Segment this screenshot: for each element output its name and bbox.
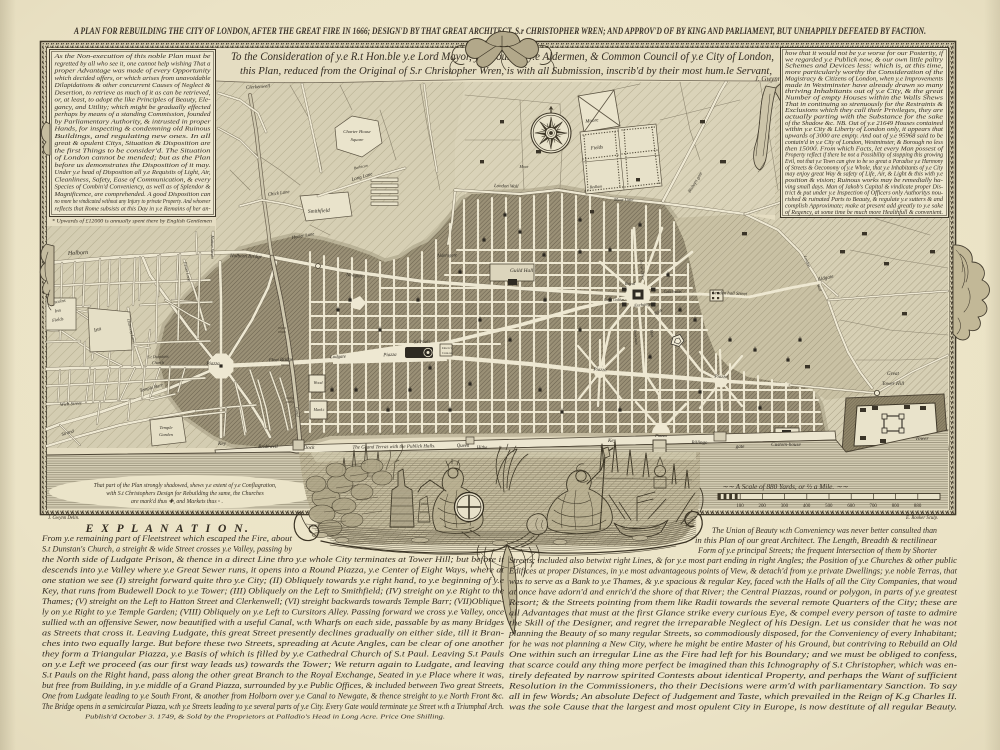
svg-text:Thames; (V) streight on the Le: Thames; (V) streight on the Left to Hatt… (42, 597, 504, 606)
svg-text:Piazza: Piazza (205, 362, 220, 367)
svg-text:London Wall: London Wall (493, 184, 519, 190)
svg-text:as Streets that cross it. Leav: as Streets that cross it. Leaving Ludgat… (42, 629, 504, 638)
svg-text:From y.e remaining part of Fle: From y.e remaining part of Fleetstreet w… (41, 534, 293, 543)
svg-text:Tower: Tower (915, 436, 929, 442)
svg-text:Bridewell: Bridewell (258, 445, 278, 450)
svg-text:Bedlam: Bedlam (589, 184, 602, 190)
svg-text:position & vision; Ruinous wor: position & vision; Ruinous works may be … (784, 178, 943, 184)
svg-text:gate: gate (736, 445, 745, 450)
svg-text:To the Consideration of y.e R.: To the Consideration of y.e R.t Hon.ble … (231, 51, 774, 63)
svg-text:Evil, not that y.e Town can gi: Evil, not that y.e Town can give to be s… (784, 159, 943, 165)
svg-text:The Bridge opens in a semicirc: The Bridge opens in a semicircular Piazz… (42, 702, 504, 711)
svg-text:contain'd in y.e City of Londo: contain'd in y.e City of London, Westmin… (785, 139, 944, 146)
svg-text:may enjoy great Way & safety o: may enjoy great Way & safety of Life, Ai… (785, 171, 943, 178)
svg-text:planning the Beauty of so many: planning the Beauty of so many regular S… (508, 629, 957, 638)
svg-text:700: 700 (870, 504, 878, 509)
svg-text:of the Shadow &c. NB. Out of y: of the Shadow &c. NB. Out of y.e 21649 H… (785, 120, 943, 127)
svg-text:That part of the Plan strongly: That part of the Plan strongly shadowed,… (94, 482, 277, 489)
svg-text:thriving Inhabitants out of y.: thriving Inhabitants out of y.e City, & … (785, 88, 944, 95)
svg-text:Under y.e head of Disposition: Under y.e head of Disposition all y.e Re… (55, 169, 212, 176)
svg-text:Dock: Dock (303, 445, 316, 451)
svg-text:in this Plan of our great Arch: in this Plan of our great Architect. The… (695, 536, 938, 545)
svg-text:Resolution in the Commissioner: Resolution in the Commissioners, tho the… (508, 681, 958, 690)
svg-text:Queen: Queen (457, 444, 470, 449)
svg-text:Aldersgate: Aldersgate (436, 252, 457, 258)
svg-text:no more be vindicated without: no more be vindicated without any Injury… (55, 199, 212, 205)
svg-text:One within such an irregular L: One within such an irregular Line as the… (509, 650, 957, 659)
svg-text:one station we see (I) streigh: one station we see (I) streight forward … (42, 576, 504, 585)
svg-text:Charter House: Charter House (343, 129, 370, 134)
svg-text:the Skill of the Designer, and: the Skill of the Designer, and regret th… (509, 619, 958, 628)
svg-text:regretted by all who see it, o: regretted by all who see it, one cannot … (55, 61, 211, 67)
svg-text:As the Non-execution of this n: As the Non-execution of this noble Plan … (53, 53, 211, 60)
svg-text:before us demonstrates the Dis: before us demonstrates the Disposition o… (55, 162, 211, 169)
svg-text:they form a Triangular Piazza,: they form a Triangular Piazza, y.e Basis… (42, 650, 504, 659)
svg-text:Piazza: Piazza (382, 353, 397, 359)
svg-text:Smithfield: Smithfield (308, 207, 331, 215)
svg-text:within y.e City & Liberty of L: within y.e City & Liberty of London only… (785, 126, 943, 133)
svg-text:Resort; & the Streets pointing: Resort; & the Streets pointing from them… (508, 598, 958, 607)
svg-text:Dilapidations & other concurre: Dilapidations & other concurrent Causes … (53, 82, 211, 89)
svg-text:Species of Combin'd Convenienc: Species of Combin'd Conveniency, as well… (55, 184, 211, 191)
svg-text:actually parting with the Subs: actually parting with the Substance for … (785, 114, 944, 121)
svg-text:S.t Pauls on the Right hand, p: S.t Pauls on the Right hand, pass along … (42, 671, 504, 680)
svg-text:Ludgate: Ludgate (329, 355, 347, 361)
svg-text:One from Ludgate leading to y.: One from Ludgate leading to y.e South Fr… (42, 692, 504, 701)
svg-text:are mark'd thus ✚, and Markets: are mark'd thus ✚, and Markets thus ▫ . (131, 498, 223, 505)
svg-text:800: 800 (892, 504, 900, 509)
svg-text:Guild Goldsm.: Guild Goldsm. (604, 298, 625, 302)
svg-text:by Parliamentary Authority, &: by Parliamentary Authority, & intrusted … (55, 119, 212, 125)
svg-text:Property reflect if there be n: Property reflect if there be not a Possi… (784, 152, 943, 159)
svg-text:trict & put under y.e Inspecti: trict & put under y.e Inspection of Offi… (785, 190, 943, 197)
svg-text:Temple: Temple (159, 425, 172, 430)
svg-text:E. Rooker Sculp.: E. Rooker Sculp. (905, 516, 938, 521)
svg-text:Royal: Royal (624, 281, 636, 286)
svg-text:Doct.rs: Doct.rs (441, 346, 453, 350)
svg-text:that scarce could any thing mo: that scarce could any thing more perfect… (509, 661, 957, 670)
svg-text:of Regency, at some time be mu: of Regency, at some time be much more He… (785, 209, 943, 216)
svg-text:was to serve as a Bank to y.e: was to serve as a Bank to y.e Thames, & … (509, 577, 958, 586)
svg-text:S.t Dunstans: S.t Dunstans (147, 354, 169, 360)
svg-text:Number of empty Houses within: Number of empty Houses within the Walls … (784, 94, 944, 101)
svg-text:Piazza: Piazza (654, 433, 668, 438)
svg-text:the North side of Ludgate Pris: the North side of Ludgate Prison, & then… (42, 555, 505, 564)
svg-text:Magnificence, are comprehended: Magnificence, are comprehended. A good D… (53, 191, 210, 198)
svg-text:Tower Hill: Tower Hill (882, 381, 905, 387)
svg-text:of Streets & Oeconomy of y.e W: of Streets & Oeconomy of y.e Whole, that… (785, 164, 943, 171)
svg-text:Key, that runs from Budewell D: Key, that runs from Budewell Dock to y.e… (41, 587, 505, 596)
svg-text:The Union of Beauty w.th Conve: The Union of Beauty w.th Conveniency was… (712, 526, 937, 535)
svg-text:great & opulent Citys, Situati: great & opulent Citys, Situation & Dispo… (55, 141, 211, 147)
svg-text:complish Approximate; make at: complish Approximate; make at present ad… (785, 203, 943, 209)
svg-text:Wood: Wood (314, 380, 324, 385)
svg-text:sullied w.th an offensive Sewe: sullied w.th an offensive Sewer, now bea… (42, 618, 504, 627)
svg-text:or, at least, to adopt the lik: or, at least, to adopt the like Principl… (55, 97, 211, 104)
svg-text:but free from Building, in y.e: but free from Building, in y.e middle of… (42, 681, 504, 690)
svg-text:Desertion, to retrieve as much: Desertion, to retrieve as much of it as … (53, 89, 211, 96)
svg-text:200: 200 (759, 504, 767, 509)
svg-text:S.t Dunstan's Church, a streig: S.t Dunstan's Church, a streight & wide … (42, 545, 292, 554)
svg-text:That in continuing so strenuou: That in continuing so strenuously for th… (785, 101, 944, 108)
svg-text:upwards of 3000 are empty. And: upwards of 3000 are empty. And out of y.… (785, 133, 943, 140)
svg-text:tirely defeated by narrow spir: tirely defeated by narrow spirited Conte… (509, 671, 958, 680)
svg-text:Schemes and Devices less: whic: Schemes and Devices less: which is, at t… (785, 64, 944, 70)
svg-text:at once have adorn'd and enric: at once have adorn'd and enrich'd the sh… (509, 587, 958, 596)
svg-text:rished & ruinated Parts to Bea: rished & ruinated Parts to Beauty, & reg… (785, 197, 943, 203)
svg-text:Piazza: Piazza (713, 375, 728, 381)
svg-text:Magistracy & Citizens of Londo: Magistracy & Citizens of London, when y.… (784, 75, 944, 82)
svg-text:J. Gwynn.: J. Gwynn. (755, 75, 783, 83)
svg-text:gancy, and Utility; which migh: gancy, and Utility; which might be gradu… (55, 104, 212, 111)
svg-text:perhaps by means of a standing: perhaps by means of a standing Commissio… (53, 111, 211, 118)
svg-text:Hatton Street: Hatton Street (210, 234, 215, 259)
svg-text:Com.ns: Com.ns (442, 351, 453, 355)
svg-text:Edifices at proper Distances,: Edifices at proper Distances, in y.e mos… (508, 566, 958, 575)
svg-text:was the sole Cause that the la: was the sole Cause that the largest and … (509, 702, 957, 711)
svg-text:then 15000. From which Facts,: then 15000. From which Facts, let every … (785, 145, 945, 152)
svg-text:Custom-house: Custom-house (771, 442, 801, 448)
svg-text:reflects that Rome subsists at: reflects that Rome subsists at this Day … (55, 205, 211, 212)
svg-text:Publish'd October 3. 1749, & S: Publish'd October 3. 1749, & Sold by the… (84, 714, 445, 721)
svg-text:Buildings, and regulating new: Buildings, and regulating new ones. In a… (55, 134, 212, 140)
svg-text:which decided offers, or which: which decided offers, or which arises fr… (55, 75, 211, 82)
svg-text:Guild Hall: Guild Hall (510, 268, 534, 274)
svg-text:400: 400 (803, 504, 811, 509)
svg-text:the first Things to be conside: the first Things to be consider'd. The S… (55, 147, 211, 154)
svg-text:with S.t Christophers Design f: with S.t Christophers Design for Rebuild… (106, 490, 264, 497)
svg-text:Piazza: Piazza (592, 368, 607, 374)
svg-text:Form of y.e principal Streets;: Form of y.e principal Streets; the frequ… (697, 546, 938, 555)
svg-text:Cleanliness, Safety, Ease of C: Cleanliness, Safety, Ease of Communicati… (55, 176, 211, 183)
svg-text:Holborn: Holborn (67, 250, 89, 257)
svg-text:Exclusions which they call the: Exclusions which they call their Privile… (784, 108, 944, 114)
svg-text:we regarded y.e Publick now, &: we regarded y.e Publick now, & our own l… (785, 57, 943, 63)
svg-text:Garden: Garden (159, 432, 174, 437)
svg-text:Mark.t: Mark.t (313, 407, 326, 412)
svg-text:600: 600 (847, 504, 855, 509)
svg-text:Church: Church (152, 360, 165, 365)
svg-text:all in few Words; An absolute: all in few Words; An absolute Defect of … (509, 692, 957, 701)
svg-text:proper Advantage was made of e: proper Advantage was made of every Oppor… (53, 68, 211, 75)
svg-text:∼∼ A Scale of 880 Yards, or ½: ∼∼ A Scale of 880 Yards, or ½ a Mile. ∼∼ (722, 483, 848, 491)
svg-text:Streets; included also betwixt: Streets; included also betwixt right Lin… (509, 556, 957, 565)
svg-text:descends into y.e Valley where: descends into y.e Valley where y.e Great… (42, 566, 505, 575)
svg-text:* Upwards of £12000 is annuall: * Upwards of £12000 is annually spent th… (52, 218, 212, 225)
svg-text:Square: Square (351, 137, 364, 142)
svg-text:Moor: Moor (519, 164, 529, 169)
svg-text:Billings-: Billings- (691, 441, 709, 446)
svg-text:J. Gwynn Delin.: J. Gwynn Delin. (48, 516, 79, 521)
svg-text:Hands, for inspecting & condem: Hands, for inspecting & condemning old R… (53, 126, 211, 133)
svg-text:for he was not planning a New: for he was not planning a New City, wher… (509, 640, 958, 649)
svg-text:100: 100 (736, 504, 744, 509)
svg-text:ly on y.e Right to y.e Temple: ly on y.e Right to y.e Temple Garden; (V… (42, 608, 504, 617)
svg-text:of London cannot be mended; bu: of London cannot be mended; but as the P… (55, 155, 211, 162)
svg-text:300: 300 (781, 504, 789, 509)
svg-text:made in Westminster have alrea: made in Westminster have already drawn s… (785, 83, 944, 89)
svg-text:Fleet Bridge: Fleet Bridge (268, 358, 294, 364)
svg-text:Gold Smiths: Gold Smiths (664, 290, 682, 294)
svg-text:on y.e Left we proceed (as our: on y.e Left we proceed (as our first way… (42, 660, 504, 669)
svg-text:this Plan, reduced from the Or: this Plan, reduced from the Original of … (240, 66, 772, 77)
svg-text:ches into two equally large. B: ches into two equally large. But before … (42, 639, 505, 648)
svg-text:Great: Great (887, 371, 899, 377)
svg-text:880: 880 (914, 504, 922, 509)
svg-text:S.t Pauls: S.t Pauls (414, 339, 431, 345)
svg-text:500: 500 (825, 504, 833, 509)
svg-text:Hithe: Hithe (476, 446, 489, 451)
svg-text:Key: Key (217, 441, 227, 447)
svg-text:more particularly worthy the C: more particularly worthy the Considerati… (785, 69, 944, 76)
svg-text:Moor Gate: Moor Gate (613, 197, 633, 202)
svg-text:all Advantages that must at th: all Advantages that must at the first Gl… (509, 608, 957, 617)
svg-text:how that it would not be y.e w: how that it would not be y.e worse for o… (785, 50, 945, 57)
svg-text:ving small days. Man of Jakob': ving small days. Man of Jakob's Capital … (785, 183, 943, 190)
